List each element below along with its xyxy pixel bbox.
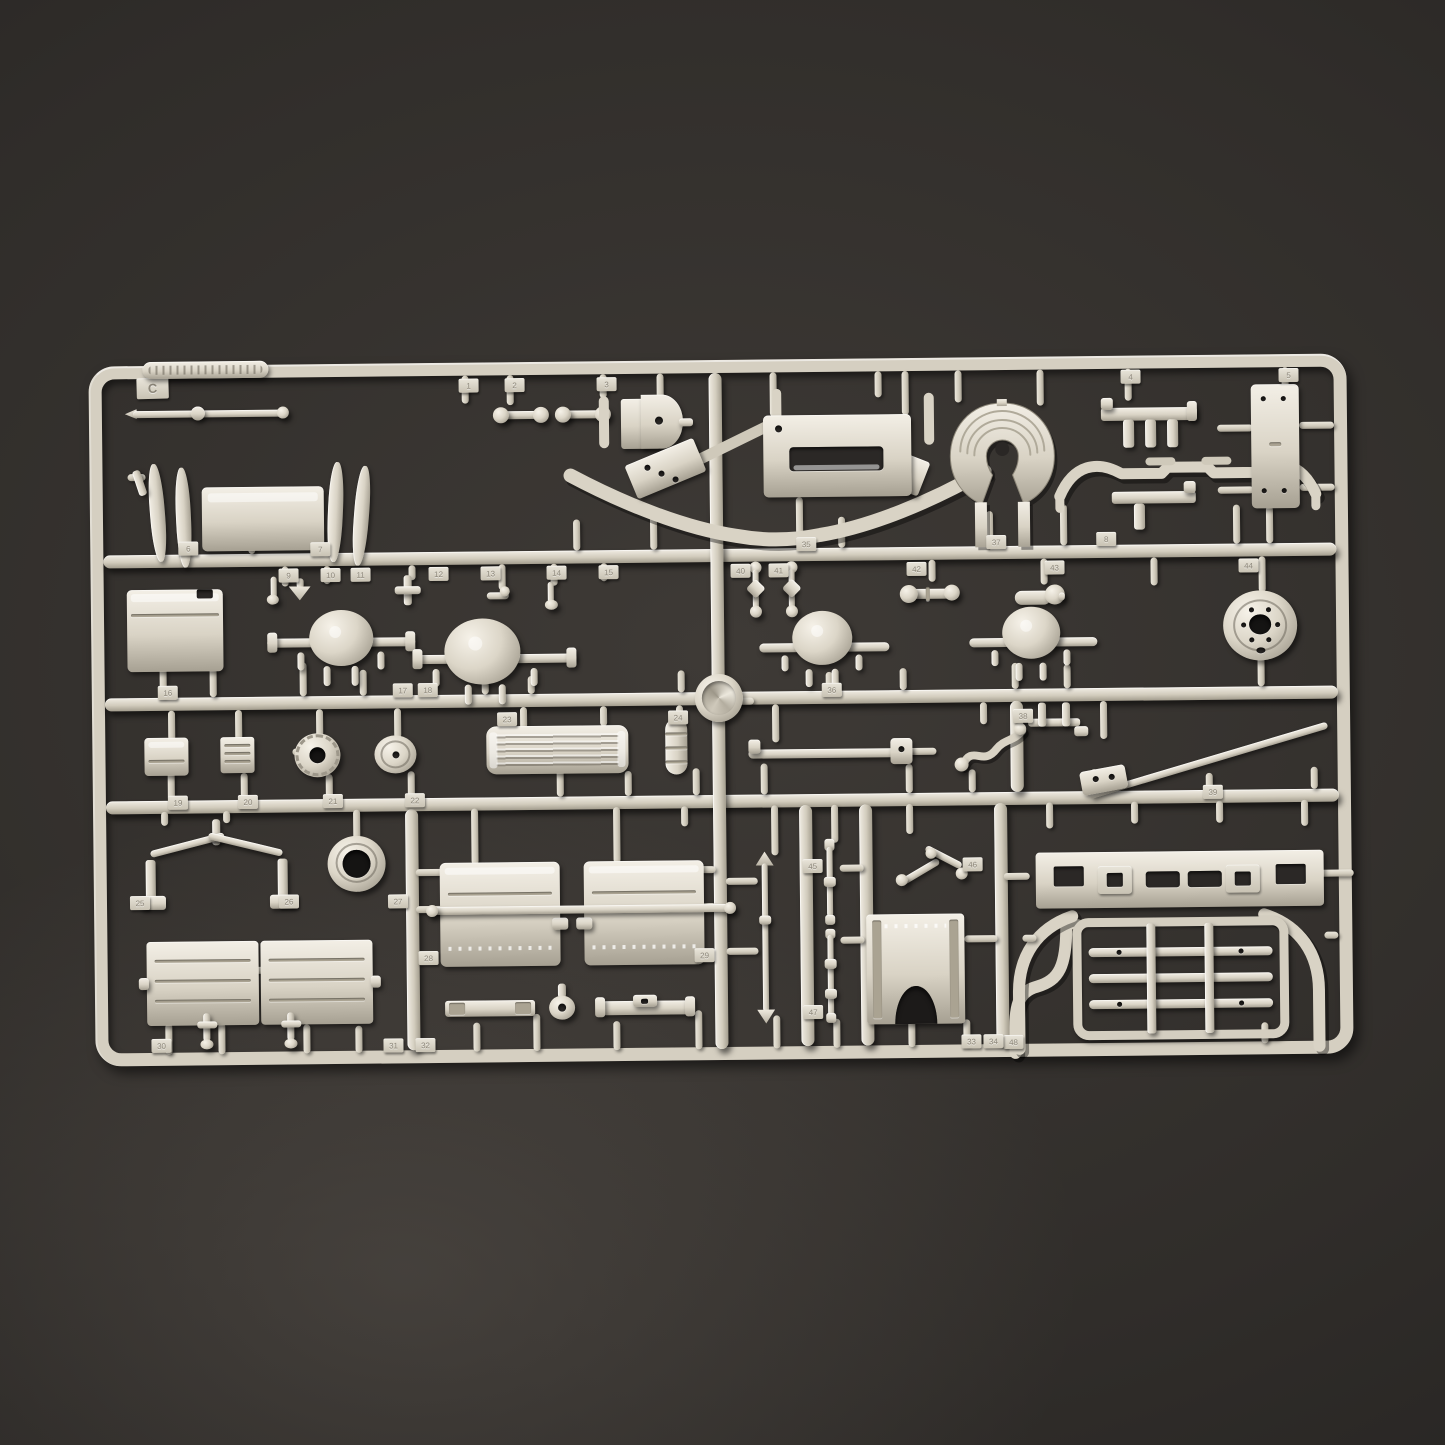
radiator-grille-guard-detail [1117,1002,1122,1007]
battery-box-detail [197,589,213,598]
part-number-tag-44: 44 [1238,558,1258,572]
torque-rod [753,851,777,1023]
radiator-grille-guard-detail [1188,871,1222,887]
cab-floor-panel-detail [872,920,882,1018]
part-number-tag-45: 45 [803,859,823,873]
wheel-hub-detail [1241,622,1246,627]
radiator-panel-b-detail [260,940,373,1025]
part-number-tag-30: 30 [151,1039,171,1053]
radiator-grille-guard-detail [1146,871,1180,887]
radiator-grille-guard-detail [1089,972,1273,983]
part-number-tag-24: 24 [668,710,688,724]
sprue-gate [831,805,838,843]
pedal-bracket-detail [1038,703,1046,727]
drawbar-hanger-detail [146,860,156,900]
axle-housing-2-detail [468,636,482,650]
support-bracket-bar-detail [748,740,760,754]
sprue-gate [908,748,936,755]
front-fender-set-detail [146,463,169,562]
sprue-gate [1301,800,1308,826]
linkage-hook-b-detail [545,600,558,610]
axle-housing-1-detail [329,626,341,638]
axle-housing-2-detail [444,618,521,685]
tie-rod-end [900,580,960,607]
axle-housing-3-detail [792,611,853,666]
part-number-tag-43: 43 [1044,560,1064,574]
sprue-gate [613,807,621,863]
valve-fitting-a-detail [197,1021,217,1028]
sprue-gate [471,809,479,865]
stowage-box-lid-detail [793,464,879,470]
stowage-box-lid-detail [775,425,782,432]
tank-tie-rod-detail [428,904,734,915]
mounting-bracket-detail [449,1003,465,1015]
linkage-barb-detail [500,586,510,596]
molded-text-strip [142,361,268,379]
linkage-tee [395,575,421,605]
part-number-tag-14: 14 [546,566,566,580]
sprue-gate [394,708,401,738]
part-number-tag-18: 18 [418,683,438,697]
ribbed-plate [220,737,254,773]
axle-housing-4-detail [1002,606,1061,659]
wheel-hub [1223,590,1298,661]
drive-shaft-a [819,839,840,925]
drive-shaft-b-detail [826,1013,836,1023]
tie-rod-end-detail [900,585,918,603]
part-number-tag-37: 37 [986,535,1006,549]
gear-ring-detail [309,747,325,763]
fifth-wheel-coupling-shape [943,398,1063,551]
sprue-gate [900,668,907,690]
triple-prong-bracket-detail [1101,398,1113,410]
axle-housing-3 [759,610,890,685]
torque-rod-detail [759,915,771,924]
part-number-tag-4: 4 [1120,370,1140,384]
axle-housing-1-detail [309,610,374,667]
part-number-tag-11: 11 [350,568,370,582]
front-fender-set-detail [208,492,318,502]
small-box-detail [148,760,184,763]
part-number-tag-32: 32 [415,1038,435,1052]
part-number-tag-2: 2 [505,378,525,392]
hydraulic-cylinder-detail [665,732,687,735]
sprue-gate [693,768,700,795]
linkage-arrow-detail [289,586,311,600]
sprue-gate [303,1024,310,1053]
front-fender-set [135,459,410,572]
wheel-hub-detail [1266,607,1271,612]
valve-fitting-b [281,1012,301,1048]
long-control-rod-detail [1079,764,1129,796]
triple-prong-bracket-detail [1187,401,1197,421]
part-number-tag-12: 12 [428,567,448,581]
axle-housing-2-detail [566,648,576,668]
mounting-plate-detail [1281,396,1286,401]
sprue-gate [906,804,913,834]
axle-housing-3-detail [855,655,862,671]
torsion-bar-detail [277,406,289,418]
radiator-grille-guard-detail [1276,864,1306,884]
sprue-gate [772,704,779,742]
steering-lever [895,839,968,892]
ball-joint-detail [1059,592,1065,600]
wheel-hub-detail [1266,637,1271,642]
tank-tie-rod-detail [426,905,438,917]
mounting-bracket-detail [515,1002,531,1014]
axle-housing-1-detail [324,666,331,686]
torsion-bar-detail [191,406,205,420]
tank-tie-rod-detail [724,902,736,914]
steering-lever-detail [896,874,908,886]
small-box [144,738,188,776]
part-number-tag-3: 3 [597,377,617,391]
small-box-detail [148,742,184,748]
torque-rod-detail [762,864,770,1012]
part-number-tag-25: 25 [130,896,150,910]
sprue-gate [600,706,607,726]
long-control-rod-detail [1093,776,1099,782]
leaf-spring-assembly-detail [673,476,679,482]
tie-rod-end-detail [944,584,960,600]
radiator-grille-guard-detail [1107,873,1123,887]
axle-housing-4-detail [1016,663,1023,681]
sprue-gate [613,1021,620,1050]
sprue-gate [473,1023,480,1052]
radiator-panel-b [260,940,373,1025]
injection-boss-detail [702,681,736,715]
axle-housing-4-detail [1040,663,1047,681]
chain-link-a-detail [746,579,766,599]
long-control-rod [1080,692,1337,799]
axle-housing-2-detail [465,685,472,705]
sprue-gate [235,710,242,740]
sprue-gate [1266,506,1273,543]
mounting-plate-detail [1261,396,1266,401]
part-number-tag-20: 20 [238,795,258,809]
valve-fitting-b-detail [284,1038,297,1048]
sprue-gate [1004,873,1030,880]
axle-housing-4-detail [991,650,998,666]
sprue-gate [168,711,175,741]
sprue-gate [964,935,997,942]
hub-cap-disc [374,735,416,773]
pedal-bracket-detail [1062,702,1070,726]
t-bracket-detail [1184,481,1196,493]
sprue-gate [355,1026,362,1053]
part-number-tag-15: 15 [598,565,618,579]
sprue-gate [1217,424,1253,431]
part-number-tag-5: 5 [1278,368,1298,382]
part-number-tag-36: 36 [822,683,842,697]
fuel-tank-b-detail [576,917,592,929]
part-number-tag-42: 42 [906,562,926,576]
stowage-box-lid [763,414,912,498]
mounting-plate [1251,384,1300,508]
part-number-tag-16: 16 [158,686,178,700]
molded-text-strip-detail [148,365,262,375]
wheel-hub-detail [1249,637,1254,642]
linkage-barb [487,586,509,604]
axle-housing-4-detail [1020,620,1032,632]
axle-housing-3-detail [811,625,823,637]
sprue-gate [1150,557,1157,585]
drive-shaft-b-detail [827,935,834,1017]
fifth-wheel-coupling [943,398,1063,551]
support-bracket-bar [748,738,912,768]
battery-box [127,589,224,672]
brake-drum [327,836,386,893]
radiator-panel-b-detail [371,976,381,988]
radiator-grille-guard [1027,844,1333,1047]
leaf-spring-assembly-detail [658,471,664,477]
tie-rod-end-detail [926,587,930,601]
radiator-grille-guard-detail [1022,935,1036,942]
radiator-grille-guard-detail [1239,949,1244,954]
sprue-gate [1131,802,1138,824]
radiator-grille-guard-detail [1204,923,1214,1033]
mounting-plate-detail [1282,488,1287,493]
part-number-tag-9: 9 [278,568,298,582]
wheel-hub-detail [1249,607,1254,612]
mounting-bracket [445,994,535,1025]
hydraulic-cylinder-detail [666,760,688,763]
long-control-rod-detail [1109,774,1115,780]
steering-lever-detail [925,848,936,859]
gear-ring [294,733,340,777]
axle-housing-4-detail [1063,649,1070,665]
radiator-grille-guard-detail [1324,932,1338,939]
part-number-tag-26: 26 [279,894,299,908]
radiator-panel-a-detail [139,978,149,990]
cross-member-bar-detail [641,999,648,1004]
oil-cooler-core-detail [617,731,625,767]
sprue-gate [833,1019,840,1048]
oil-cooler-core-detail [496,733,618,766]
brake-drum-detail [342,850,370,878]
part-number-tag-21: 21 [323,794,343,808]
cross-member-bar-detail [685,996,695,1016]
radiator-grille-guard-detail [1054,866,1084,886]
torsion-bar [125,402,295,422]
sprue-gate [681,806,688,826]
part-number-tag-29: 29 [694,948,714,962]
support-bracket-bar-detail [748,748,912,759]
part-number-tag-28: 28 [419,951,439,965]
part-number-tag-22: 22 [405,793,425,807]
fuel-tank-b-detail [589,865,699,873]
sprue-runner-c: C 12345678353791011121314154041424344161… [0,0,1445,1445]
axle-housing-2-detail [531,668,538,686]
axle-housing-3-detail [806,669,813,687]
wheel-hub-detail [1256,647,1265,653]
chain-link-b-detail [782,578,802,598]
drive-shaft-a-detail [825,915,835,925]
mounting-plate-detail [1269,442,1281,446]
axle-housing-1-detail [377,652,384,670]
hydraulic-cylinder-detail [665,746,687,749]
sprue-gate [840,865,864,872]
part-number-tag-46: 46 [963,857,983,871]
axle-housing-1-detail [267,633,277,653]
part-number-tag-33: 33 [961,1034,981,1048]
ribbed-plate-detail [224,744,250,747]
part-number-tag-13: 13 [480,566,500,580]
oil-cooler-core [486,725,628,774]
valve-fitting-a-detail [200,1039,213,1049]
part-number-tag-35: 35 [796,537,816,551]
axle-housing-1 [267,607,416,691]
linkage-tee-detail [395,586,421,594]
torque-rod-detail [757,1009,775,1023]
drawbar-hanger-detail [278,859,288,899]
cross-member-bar [599,992,691,1021]
radiator-grille-guard-detail [1235,871,1251,885]
axle-housing-2-detail [412,649,422,669]
sprue-gate [1046,803,1053,829]
oil-cooler-core-detail [489,732,497,768]
valve-fitting-a [197,1013,217,1049]
sprue-gate [906,764,913,793]
link-rod-a-detail [493,407,509,423]
sprue-gate [1257,656,1264,686]
part-number-tag-41: 41 [768,563,788,577]
cab-floor-panel-detail [884,924,946,929]
sprue-gate [761,764,768,795]
valve-fitting-b-detail [281,1020,301,1027]
axle-housing-1-detail [352,666,359,686]
axle-housing-4 [969,606,1098,679]
part-number-tag-27: 27 [388,894,408,908]
torsion-bar-detail [133,410,285,419]
leaf-spring-assembly-detail [644,465,650,471]
cab-floor-panel-detail [949,920,959,1018]
part-number-tag-19: 19 [168,796,188,810]
t-bracket [1112,481,1196,530]
shift-linkage [952,719,1029,776]
axle-housing-2-detail [499,684,506,704]
sprue-gate [1216,801,1223,823]
part-number-tag-39: 39 [1203,785,1223,799]
part-number-tag-6: 6 [178,541,198,555]
part-number-tag-17: 17 [393,683,413,697]
hub-cap-disc-detail [392,751,399,758]
fuel-tank-a-detail [552,918,568,930]
sprue-gate [928,560,935,582]
part-number-tag-47: 47 [803,1005,823,1019]
part-number-tag-48: 48 [1003,1035,1023,1049]
ribbed-plate-detail [224,752,250,755]
radiator-grille-guard-detail [1239,1001,1244,1006]
drive-shaft-b [820,929,841,1023]
part-number-tag-40: 40 [730,564,750,578]
sprue-gate [625,771,632,796]
ribbed-plate-detail [224,760,250,763]
support-bracket-bar-detail [898,746,904,752]
part-number-tag-31: 31 [383,1038,403,1052]
shift-linkage-detail [955,757,969,771]
drawbar-hanger [137,818,296,920]
linkage-hook-a-detail [267,595,279,605]
drive-shaft-b-detail [825,989,837,999]
part-number-tag-1: 1 [459,379,479,393]
injection-boss [695,674,744,723]
front-fender-set-detail [350,465,373,566]
cross-member-bar-detail [595,997,605,1017]
cab-floor-panel [866,913,965,1024]
radiator-grille-guard-detail [1117,950,1122,955]
sprue-gate [771,805,779,855]
part-number-tag-8: 8 [1096,532,1116,546]
sprue-gate [695,1010,702,1049]
axle-housing-3-detail [781,655,788,671]
drive-shaft-b-detail [825,959,837,969]
t-bracket-detail [1134,504,1145,530]
t-bracket-detail [1112,491,1196,504]
linkage-hook-b [543,582,559,610]
fuel-tank-a-detail [445,867,555,875]
sprue-gate [840,937,864,944]
shift-linkage-detail [1014,723,1026,735]
sprue-gate [678,670,685,692]
wheel-hub-detail [1275,622,1280,627]
part-number-tag-23: 23 [497,712,517,726]
part-number-tag-7: 7 [310,542,330,556]
part-number-tag-38: 38 [1013,709,1033,723]
sprue-gate [218,1023,225,1054]
photo-backdrop: C 12345678353791011121314154041424344161… [0,0,1445,1445]
axle-housing-1-detail [297,652,304,670]
washer-fitting-detail [558,1004,566,1012]
part-number-tag-34: 34 [983,1034,1003,1048]
radiator-grille-guard-detail [1146,923,1156,1033]
wheel-hub-detail [1249,614,1271,634]
part-number-tag-10: 10 [320,568,340,582]
pedal-bracket-detail [1028,718,1080,727]
drive-shaft-a-detail [824,877,836,887]
sprue-rail-5 [405,809,421,1050]
sprue-letter-tag: C [136,377,169,399]
mounting-plate-detail [1262,488,1267,493]
sprue-gate [1299,422,1334,429]
hydraulic-cylinder [662,718,691,774]
sprue-gate [1258,556,1265,592]
washer-fitting [547,984,577,1022]
